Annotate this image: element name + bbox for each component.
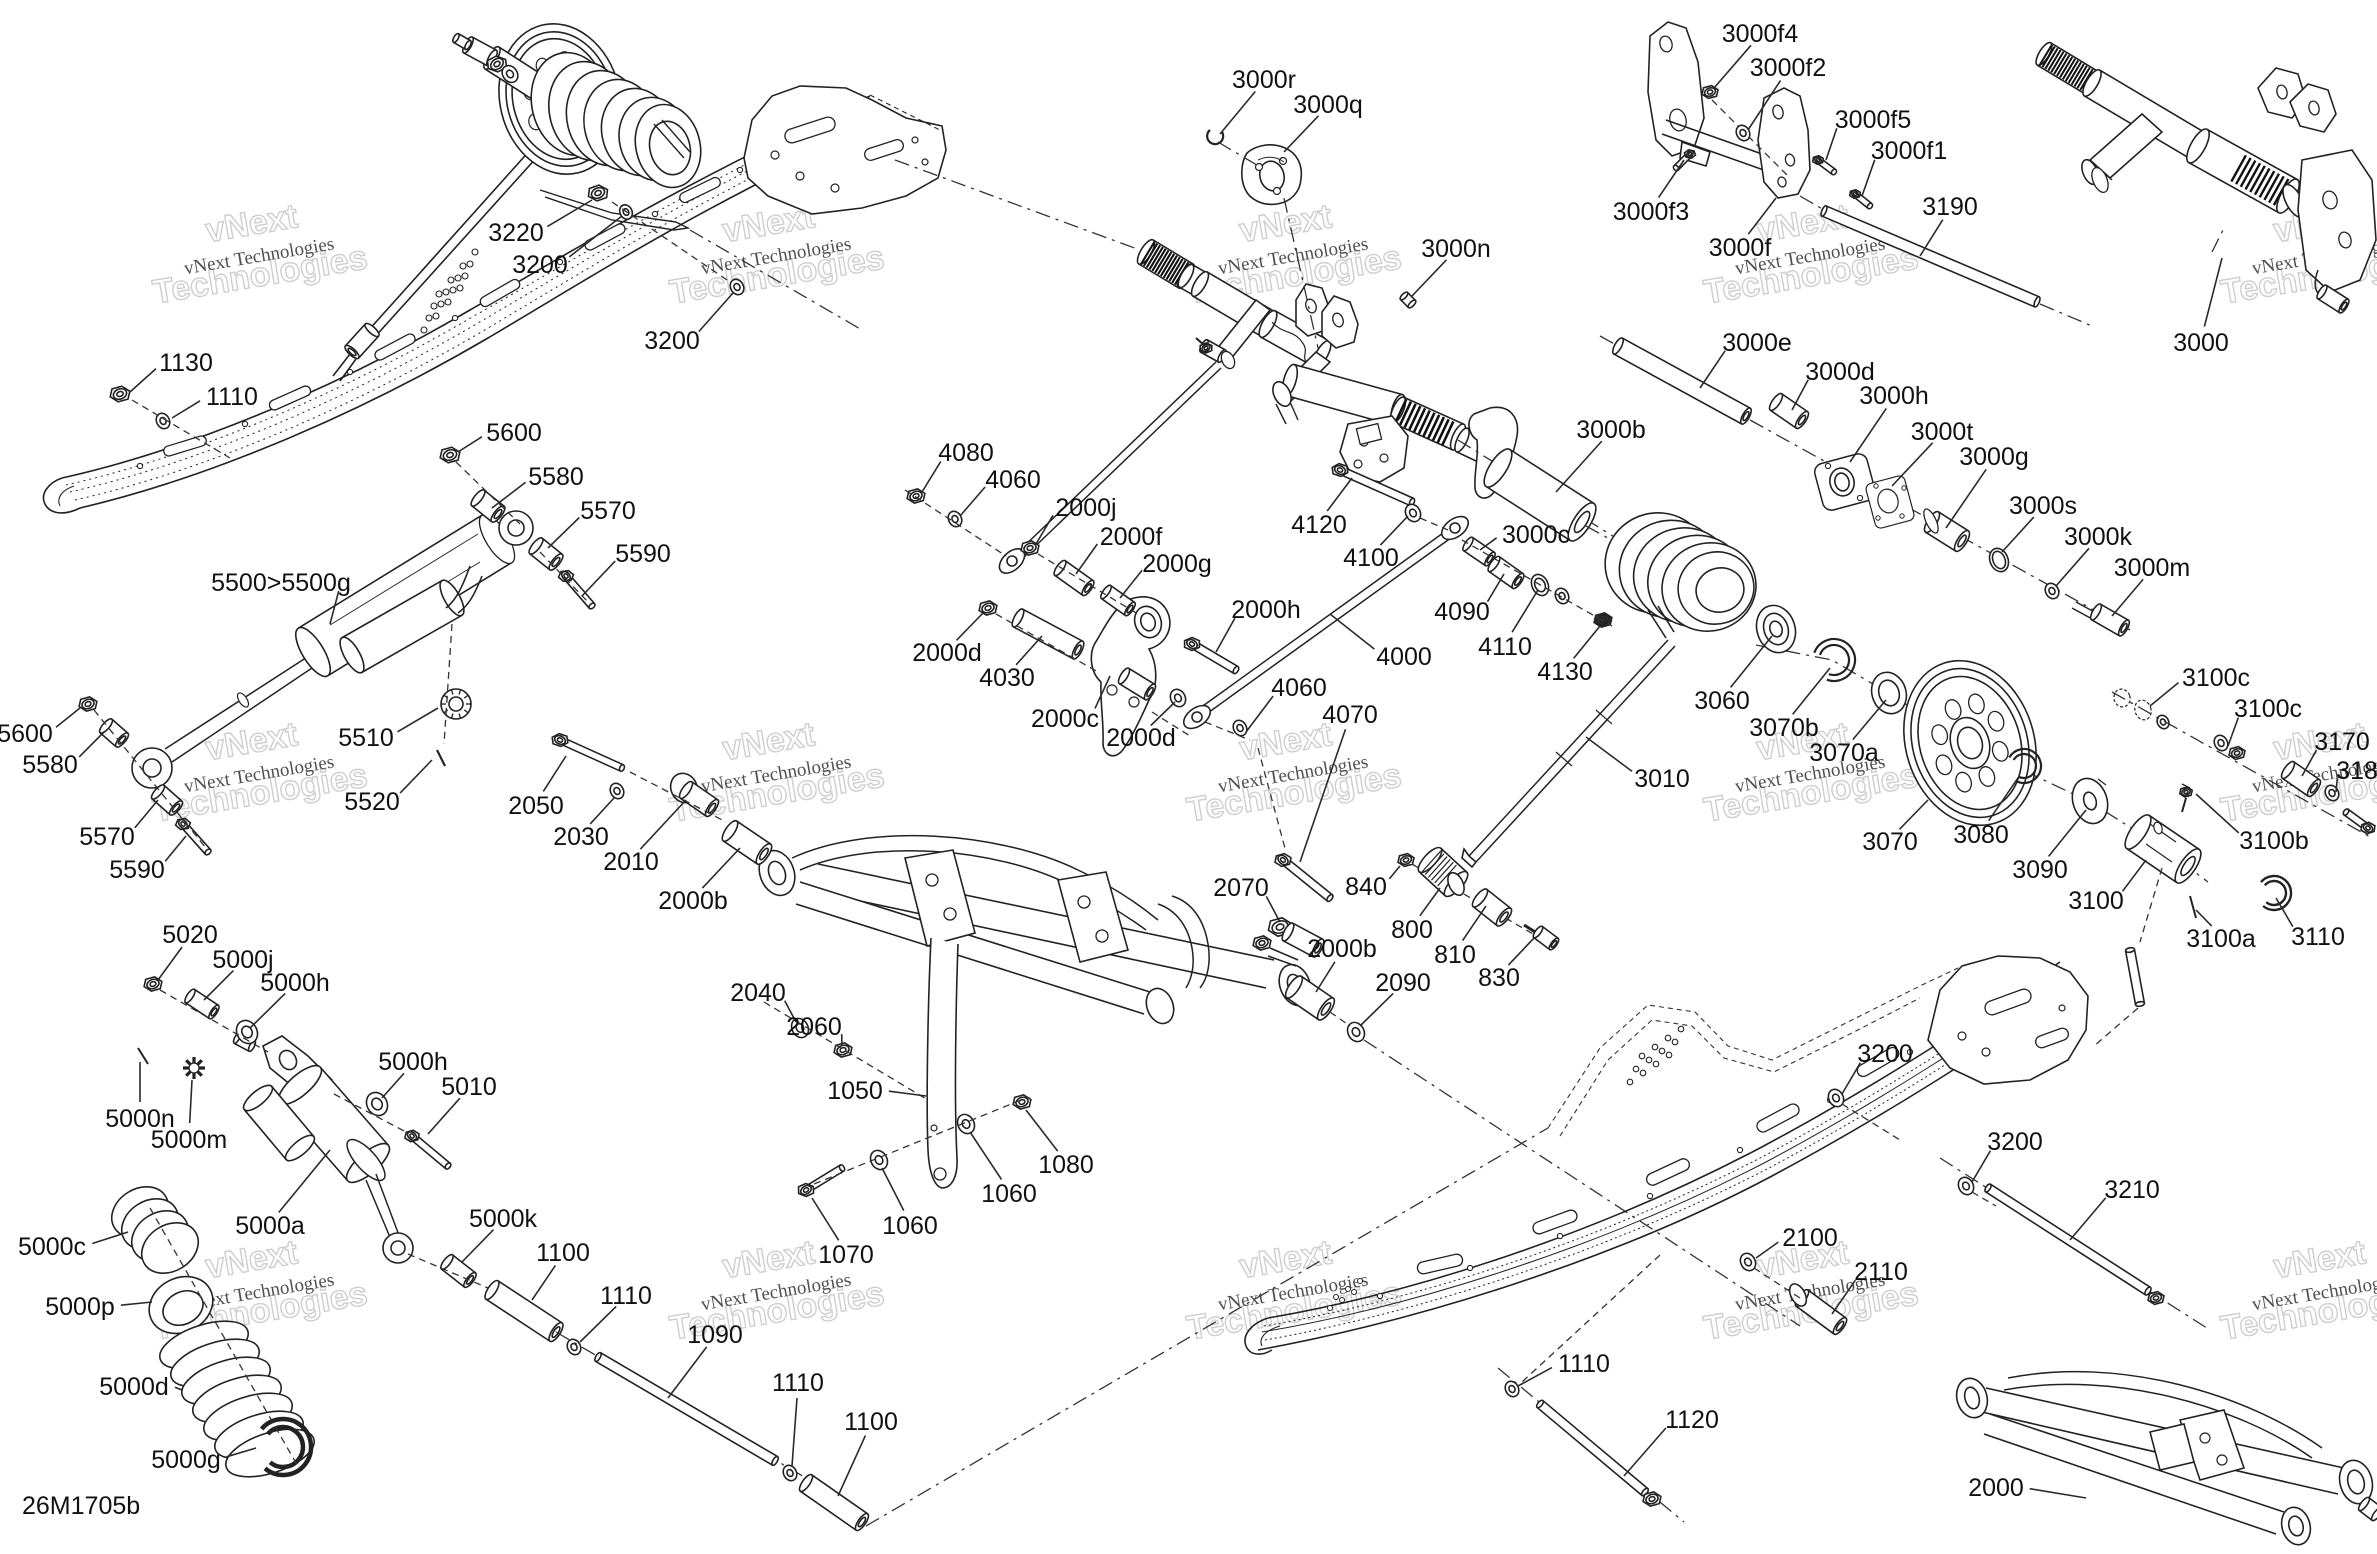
svg-text:5000p: 5000p [45, 1293, 115, 1321]
svg-text:2100: 2100 [1782, 1224, 1838, 1252]
svg-text:1110: 1110 [772, 1369, 824, 1397]
svg-text:3000k: 3000k [2064, 523, 2133, 551]
svg-text:1130: 1130 [159, 349, 213, 377]
svg-text:3090: 3090 [2012, 856, 2068, 884]
svg-text:5510: 5510 [338, 724, 394, 752]
svg-text:3000n: 3000n [1421, 235, 1491, 263]
svg-text:3000f5: 3000f5 [1835, 106, 1911, 134]
svg-text:3070: 3070 [1862, 828, 1918, 856]
svg-text:5020: 5020 [162, 921, 218, 949]
svg-text:3000q: 3000q [1293, 91, 1363, 119]
svg-text:3000c: 3000c [1502, 521, 1570, 549]
svg-text:3000f3: 3000f3 [1613, 198, 1689, 226]
svg-text:3000e: 3000e [1722, 329, 1792, 357]
svg-text:5000g: 5000g [151, 1446, 221, 1474]
svg-text:810: 810 [1434, 941, 1476, 969]
svg-text:3210: 3210 [2104, 1176, 2160, 1204]
svg-text:5590: 5590 [615, 540, 671, 568]
svg-text:2000: 2000 [1968, 1474, 2024, 1502]
svg-text:2000g: 2000g [1142, 550, 1212, 578]
svg-text:4070: 4070 [1322, 701, 1378, 729]
svg-text:5600: 5600 [0, 720, 53, 748]
svg-text:3000r: 3000r [1232, 66, 1296, 94]
svg-text:3070a: 3070a [1809, 739, 1879, 767]
svg-text:5600: 5600 [486, 419, 542, 447]
svg-text:3000m: 3000m [2114, 554, 2190, 582]
svg-text:5000m: 5000m [151, 1126, 227, 1154]
svg-text:3200: 3200 [644, 327, 700, 355]
svg-text:4120: 4120 [1291, 511, 1347, 539]
svg-text:2030: 2030 [553, 823, 609, 851]
svg-text:800: 800 [1391, 916, 1433, 944]
svg-text:1070: 1070 [818, 1241, 874, 1269]
svg-text:2040: 2040 [730, 979, 786, 1007]
svg-text:2090: 2090 [1375, 969, 1431, 997]
svg-text:3180: 3180 [2336, 757, 2377, 785]
svg-text:3200: 3200 [512, 251, 568, 279]
svg-text:3000g: 3000g [1959, 443, 2029, 471]
svg-text:3100c: 3100c [2182, 664, 2250, 692]
svg-text:4090: 4090 [1434, 598, 1490, 626]
svg-text:830: 830 [1478, 964, 1520, 992]
svg-text:3000f: 3000f [1709, 234, 1772, 262]
svg-text:5580: 5580 [22, 751, 78, 779]
svg-text:1100: 1100 [844, 1408, 898, 1436]
svg-text:3100a: 3100a [2186, 925, 2256, 953]
svg-text:3100b: 3100b [2239, 827, 2309, 855]
svg-text:2000b: 2000b [1307, 935, 1377, 963]
svg-text:5000a: 5000a [235, 1212, 305, 1240]
svg-text:2070: 2070 [1213, 874, 1269, 902]
svg-text:4130: 4130 [1537, 658, 1593, 686]
svg-text:840: 840 [1345, 873, 1387, 901]
svg-text:5590: 5590 [109, 856, 165, 884]
svg-text:3200: 3200 [1857, 1040, 1913, 1068]
svg-text:2000b: 2000b [658, 887, 728, 915]
svg-text:5000k: 5000k [469, 1205, 538, 1233]
svg-text:1110: 1110 [206, 383, 258, 411]
svg-text:1120: 1120 [1665, 1406, 1719, 1434]
svg-text:2060: 2060 [786, 1013, 842, 1041]
svg-text:5010: 5010 [441, 1073, 497, 1101]
svg-text:4110: 4110 [1478, 633, 1532, 661]
svg-text:2010: 2010 [603, 848, 659, 876]
svg-text:5000d: 5000d [99, 1373, 169, 1401]
svg-text:2000d: 2000d [1106, 724, 1176, 752]
svg-text:1100: 1100 [536, 1239, 590, 1267]
svg-text:3000f1: 3000f1 [1871, 137, 1947, 165]
svg-text:3220: 3220 [488, 219, 544, 247]
svg-text:5570: 5570 [79, 823, 135, 851]
svg-text:1110: 1110 [1558, 1350, 1610, 1378]
svg-text:3000: 3000 [2173, 329, 2229, 357]
svg-text:5580: 5580 [528, 463, 584, 491]
svg-text:2000h: 2000h [1231, 596, 1301, 624]
svg-text:1110: 1110 [600, 1282, 652, 1310]
svg-text:5000h: 5000h [378, 1048, 448, 1076]
svg-text:3080: 3080 [1953, 821, 2009, 849]
svg-text:3060: 3060 [1694, 687, 1750, 715]
svg-text:1090: 1090 [687, 1321, 743, 1349]
svg-text:4060: 4060 [1271, 674, 1327, 702]
svg-text:2110: 2110 [1854, 1258, 1908, 1286]
svg-text:4030: 4030 [979, 664, 1035, 692]
svg-text:26M1705b: 26M1705b [22, 1492, 140, 1520]
svg-text:3000f4: 3000f4 [1722, 20, 1799, 48]
svg-text:1060: 1060 [981, 1180, 1037, 1208]
svg-text:1050: 1050 [827, 1077, 883, 1105]
svg-text:3010: 3010 [1634, 765, 1690, 793]
svg-text:1060: 1060 [882, 1212, 938, 1240]
svg-text:4080: 4080 [938, 439, 994, 467]
svg-text:5570: 5570 [580, 497, 636, 525]
svg-text:3110: 3110 [2291, 923, 2345, 951]
svg-text:5000h: 5000h [260, 969, 330, 997]
svg-text:2000f: 2000f [1100, 523, 1163, 551]
svg-text:3000t: 3000t [1911, 418, 1974, 446]
svg-text:3170: 3170 [2314, 728, 2370, 756]
svg-text:4060: 4060 [985, 466, 1041, 494]
svg-text:2000c: 2000c [1031, 705, 1099, 733]
svg-text:5500>5500g: 5500>5500g [211, 569, 351, 597]
svg-text:4000: 4000 [1376, 643, 1432, 671]
svg-text:3070b: 3070b [1749, 714, 1819, 742]
svg-text:2050: 2050 [508, 792, 564, 820]
svg-text:3100: 3100 [2068, 887, 2124, 915]
svg-text:3000b: 3000b [1576, 416, 1646, 444]
svg-text:3000s: 3000s [2009, 492, 2077, 520]
svg-text:2000j: 2000j [1055, 494, 1116, 522]
svg-text:3000f2: 3000f2 [1750, 54, 1826, 82]
svg-text:3200: 3200 [1987, 1128, 2043, 1156]
svg-text:2000d: 2000d [912, 639, 982, 667]
svg-text:5000c: 5000c [18, 1233, 86, 1261]
svg-text:5520: 5520 [344, 788, 400, 816]
svg-text:3100c: 3100c [2234, 695, 2302, 723]
svg-text:1080: 1080 [1038, 1151, 1094, 1179]
svg-text:3190: 3190 [1922, 193, 1978, 221]
svg-text:3000h: 3000h [1859, 382, 1929, 410]
svg-text:4100: 4100 [1343, 544, 1399, 572]
